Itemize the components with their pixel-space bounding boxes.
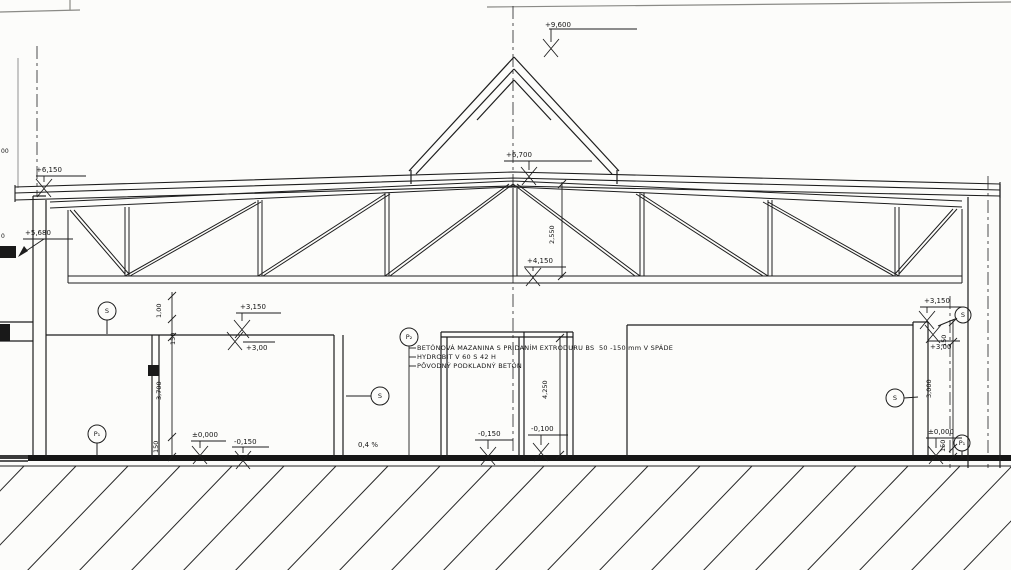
level-eave-left: +6,150: [36, 166, 62, 174]
ground-hatch: [0, 466, 1011, 570]
architectural-section-drawing: +9,600 +6,700 +6,150 +5,680 +4,150 +3,15…: [0, 0, 1011, 570]
dim-hall-height-mid: 4,250: [541, 380, 549, 399]
level-wall-top-left-raw: +3,00: [246, 344, 267, 352]
dim-step-right-bottom: 150: [939, 440, 947, 452]
slope-label: 0,4 %: [358, 441, 378, 449]
dimension-lines: [168, 180, 957, 461]
roof-truss: [50, 181, 962, 283]
partial-label-mid: 0: [1, 233, 5, 240]
marker-p1-right: P₁: [959, 439, 966, 447]
note-hydrobit: HYDROBIT V 60 S 42 H: [417, 354, 496, 361]
dim-room-height-right: 3,000: [925, 379, 933, 398]
marker-s-right-top: S: [961, 311, 965, 319]
level-floor-zero-right: ±0,000: [928, 428, 954, 436]
marker-s-right-wall: S: [893, 394, 897, 402]
dim-truss-height: 2,550: [548, 225, 556, 244]
level-bottom-chord: +4,150: [527, 257, 553, 265]
section-linework: [0, 0, 1011, 570]
level-markers: [18, 29, 964, 469]
dim-room-height-left: 3,700: [155, 381, 163, 400]
note-base-concrete: PÔVODNÝ PODKLADNÝ BETÓN: [417, 363, 522, 370]
dim-parapet-left: 1,00: [155, 304, 163, 318]
dim-step-left-top: 150: [169, 333, 177, 345]
level-wall-top-right-fin: +3,150: [924, 297, 950, 305]
roof-monitor: [409, 57, 619, 184]
level-floor-minus150-mid: -0,150: [478, 430, 501, 438]
marker-s-left: S: [105, 307, 109, 315]
marker-p1-left: P₁: [94, 430, 101, 438]
dim-step-left-bottom: 150: [152, 441, 160, 453]
level-floor-minus150-left: -0,150: [234, 438, 257, 446]
marker-p2-center: P₂: [406, 333, 413, 341]
level-ridge: +6,700: [506, 151, 532, 159]
scan-edge-lines: [0, 0, 1011, 12]
level-floor-zero-left: ±0,000: [192, 431, 218, 439]
marker-s-mid: S: [378, 392, 382, 400]
level-apex: +9,600: [545, 21, 571, 29]
level-wall-top-left-fin: +3,150: [240, 303, 266, 311]
dim-step-right-top: 150: [940, 335, 948, 347]
level-ledge-left: +5,680: [25, 229, 51, 237]
note-screed: BETÓNOVÁ MAZANINA S PRIDANÍM EXTRODURU B…: [417, 345, 673, 352]
note-leader: [409, 346, 416, 457]
level-floor-minus100-mid: -0,100: [531, 425, 554, 433]
walls: [0, 184, 1000, 468]
partial-label-top: 00: [1, 148, 9, 155]
